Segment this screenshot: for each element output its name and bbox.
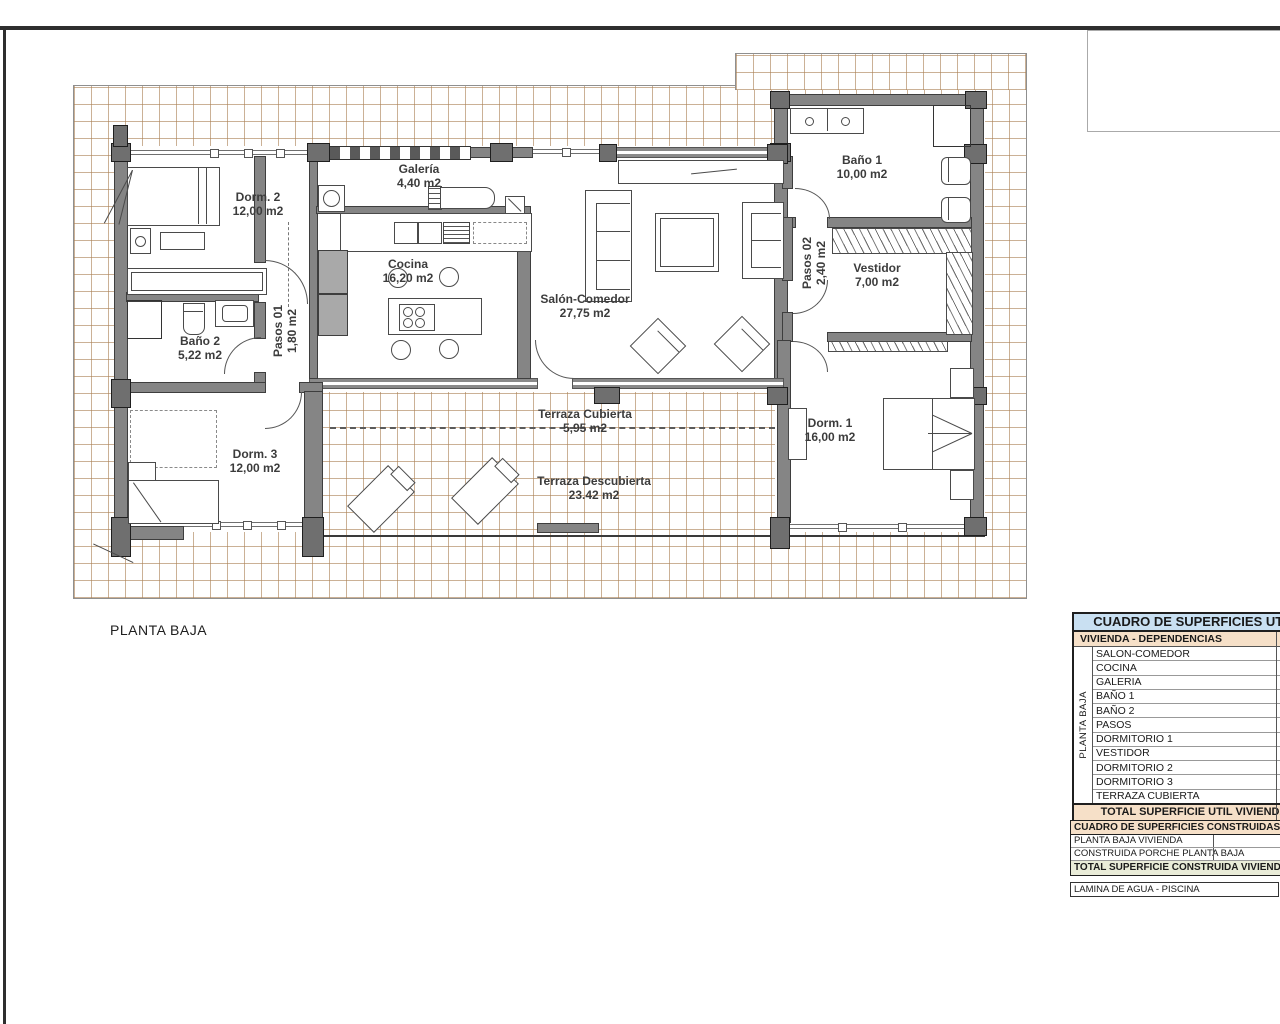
kitchen-island (388, 298, 482, 335)
nightstand-dorm1 (950, 470, 974, 500)
table-util-total: TOTAL SUPERFICIE UTIL VIVIENDA (1074, 805, 1280, 820)
wardrobe-vestidor-right (946, 252, 973, 335)
stool (391, 340, 411, 360)
pool-surface-box: LAMINA DE AGUA - PISCINA (1070, 882, 1279, 897)
table-row: PLANTA BAJA VIVIENDA (1071, 835, 1280, 848)
table-row: VESTIDOR (1093, 747, 1280, 761)
table-built-total: TOTAL SUPERFICIE CONSTRUIDA VIVIENDA (1071, 861, 1280, 875)
room-label-pasos02: Pasos 022,40 m2 (801, 237, 829, 289)
stool (439, 267, 459, 287)
oven-column (318, 294, 348, 336)
sink-bano2 (215, 300, 254, 327)
room-label-galeria: Galería4,40 m2 (397, 163, 441, 191)
room-label-bano1: Baño 110,00 m2 (837, 154, 888, 182)
table-util-side-label: PLANTA BAJA (1074, 647, 1093, 803)
room-label-terraza-descubierta: Terraza Descubierta23.42 m2 (537, 475, 651, 503)
terrace-edge-line (322, 535, 985, 537)
wardrobe-vestidor-top (832, 228, 972, 254)
room-label-dorm1: Dorm. 116,00 m2 (805, 417, 856, 445)
dining-table (655, 213, 719, 272)
nightstand-dorm2 (130, 228, 151, 254)
ironing-board (440, 187, 495, 209)
double-sink-bano1 (790, 108, 864, 134)
title-block (1087, 30, 1280, 132)
bench-dorm2 (160, 232, 205, 250)
table-row: DORMITORIO 2 (1093, 761, 1280, 775)
terrace-step (128, 527, 183, 539)
plan-title: PLANTA BAJA (110, 622, 207, 638)
table-built-title: CUADRO DE SUPERFICIES CONSTRUIDAS (m2) (1071, 821, 1280, 835)
table-superficies-utiles: CUADRO DE SUPERFICIES UTIL VIVIENDA - DE… (1072, 612, 1280, 820)
bed-dorm3 (128, 480, 219, 524)
stool (439, 339, 459, 359)
table-row: SALON-COMEDOR (1093, 647, 1280, 661)
table-row: DORMITORIO 3 (1093, 775, 1280, 789)
table-util-title: CUADRO DE SUPERFICIES UTIL (1074, 614, 1280, 632)
room-label-cocina: Cocina16,20 m2 (383, 258, 434, 286)
sheet-border-top (0, 26, 1280, 30)
room-label-bano2: Baño 25,22 m2 (178, 335, 222, 363)
room-label-vestidor: Vestidor7,00 m2 (853, 262, 900, 290)
tiled-yard-top (735, 53, 1027, 90)
bed-dorm1 (883, 398, 975, 470)
table-util-group-header: VIVIENDA - DEPENDENCIAS (1074, 632, 1280, 647)
fridge (318, 250, 348, 294)
bed-dorm2 (127, 167, 220, 226)
table-row: GALERIA (1093, 676, 1280, 690)
table-row: CONSTRUIDA PORCHE PLANTA BAJA (1071, 848, 1280, 861)
table-row: BAÑO 2 (1093, 704, 1280, 718)
room-label-dorm3: Dorm. 312,00 m2 (230, 448, 281, 476)
table-row: COCINA (1093, 661, 1280, 675)
sideboard (618, 160, 784, 184)
room-label-pasos01: Pasos 011,80 m2 (272, 305, 300, 357)
table-row: PASOS (1093, 718, 1280, 732)
toilet-bano2 (183, 303, 205, 335)
water-heater (318, 185, 345, 212)
nightstand-dorm1 (950, 368, 974, 398)
sofa-large (585, 190, 632, 302)
shower-bano1 (933, 105, 971, 147)
table-row: DORMITORIO 1 (1093, 733, 1280, 747)
toilet-bano1 (941, 157, 971, 185)
kitchen-counter (340, 213, 532, 252)
room-label-terraza-cubierta: Terraza Cubierta5,95 m2 (538, 408, 632, 436)
shower-bano2 (127, 300, 162, 339)
bed-dorm3-optional (130, 410, 217, 468)
room-label-salon: Salón-Comedor27,75 m2 (540, 293, 629, 321)
table-util-rows: SALON-COMEDORCOCINAGALERIABAÑO 1BAÑO 2PA… (1093, 647, 1280, 803)
room-label-dorm2: Dorm. 212,00 m2 (233, 191, 284, 219)
wardrobe-dorm2 (127, 268, 267, 295)
bidet-bano1 (941, 197, 971, 223)
closet-dorm1 (828, 341, 948, 352)
table-superficies-construidas: CUADRO DE SUPERFICIES CONSTRUIDAS (m2) P… (1070, 820, 1280, 876)
sofa-small (742, 202, 784, 279)
nightstand-dorm3 (128, 462, 156, 482)
table-row: BAÑO 1 (1093, 690, 1280, 704)
table-row: TERRAZA CUBIERTA (1093, 790, 1280, 803)
sheet-border-left (3, 26, 6, 1024)
